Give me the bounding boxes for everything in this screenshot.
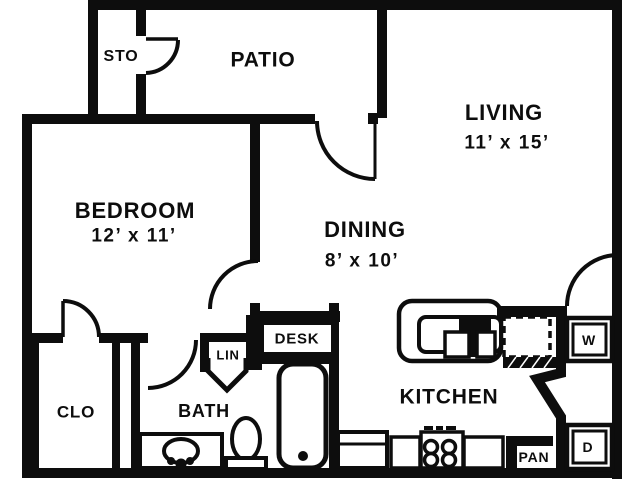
hatched-strip — [503, 357, 558, 368]
bathtub — [279, 364, 326, 468]
burner — [443, 441, 456, 454]
desk-label: DESK — [275, 332, 320, 347]
range-stove — [421, 426, 463, 468]
burner — [425, 441, 438, 454]
bedroom-door — [210, 261, 258, 309]
burner — [443, 454, 456, 467]
closet-label: CLO — [57, 404, 95, 421]
wall-bedroom-right — [250, 114, 260, 262]
wall-right-exterior — [612, 0, 622, 479]
kitchen-sink-basin-left — [445, 332, 469, 357]
patio-door — [317, 121, 375, 179]
wall-left-exterior — [22, 114, 32, 478]
storage-door — [146, 39, 178, 73]
wall-bedroom-bottom-mid — [99, 333, 148, 343]
wall-storage-upper — [136, 0, 146, 36]
dining-label: DINING — [324, 219, 406, 241]
linen-label: LIN — [216, 349, 239, 362]
bedroom-dims: 12’ x 11’ — [91, 227, 176, 246]
living-dims: 11’ x 15’ — [464, 134, 549, 153]
wall-bath-left — [131, 337, 140, 468]
wall-top-exterior — [88, 0, 622, 10]
floor-plan: STO PATIO LIVING 11’ x 15’ BEDROOM 12’ x… — [0, 0, 639, 479]
bedroom-label: BEDROOM — [75, 200, 196, 222]
base-cabinet — [338, 432, 387, 468]
living-label: LIVING — [465, 102, 543, 124]
burner — [425, 454, 438, 467]
wall-hall-horizontal — [250, 311, 340, 322]
bath-label: BATH — [178, 402, 230, 420]
wall-unit-top — [22, 114, 315, 124]
toilet — [226, 418, 266, 469]
bath-door — [148, 340, 196, 388]
entry-door — [567, 255, 618, 306]
wall-storage-lower — [136, 74, 146, 124]
wall-bottom-exterior — [22, 468, 622, 478]
patio-label: PATIO — [230, 50, 295, 71]
storage-label: STO — [103, 49, 138, 65]
wall-patio-living-divider — [377, 0, 387, 118]
wall-closet-right — [112, 337, 120, 468]
counter-section — [391, 437, 420, 468]
closet-door — [63, 301, 99, 337]
refrigerator-dashed-box — [504, 317, 550, 357]
pantry-label: PAN — [519, 450, 550, 464]
wall-patio-strip-left — [88, 0, 98, 124]
tub-drain — [298, 451, 308, 461]
wall-closet-left — [31, 337, 39, 468]
kitchen-sink-basin-right — [477, 332, 495, 357]
linen-door-chevron — [208, 358, 246, 390]
washer-label: W — [582, 333, 596, 347]
vanity-sink — [140, 434, 222, 470]
counter-section — [464, 437, 503, 468]
wall-bedroom-bottom-left — [22, 333, 63, 343]
wall-pantry-top — [506, 436, 553, 446]
dryer-label: D — [583, 440, 594, 454]
kitchen-label: KITCHEN — [400, 387, 499, 408]
dining-dims: 8’ x 10’ — [325, 252, 399, 271]
